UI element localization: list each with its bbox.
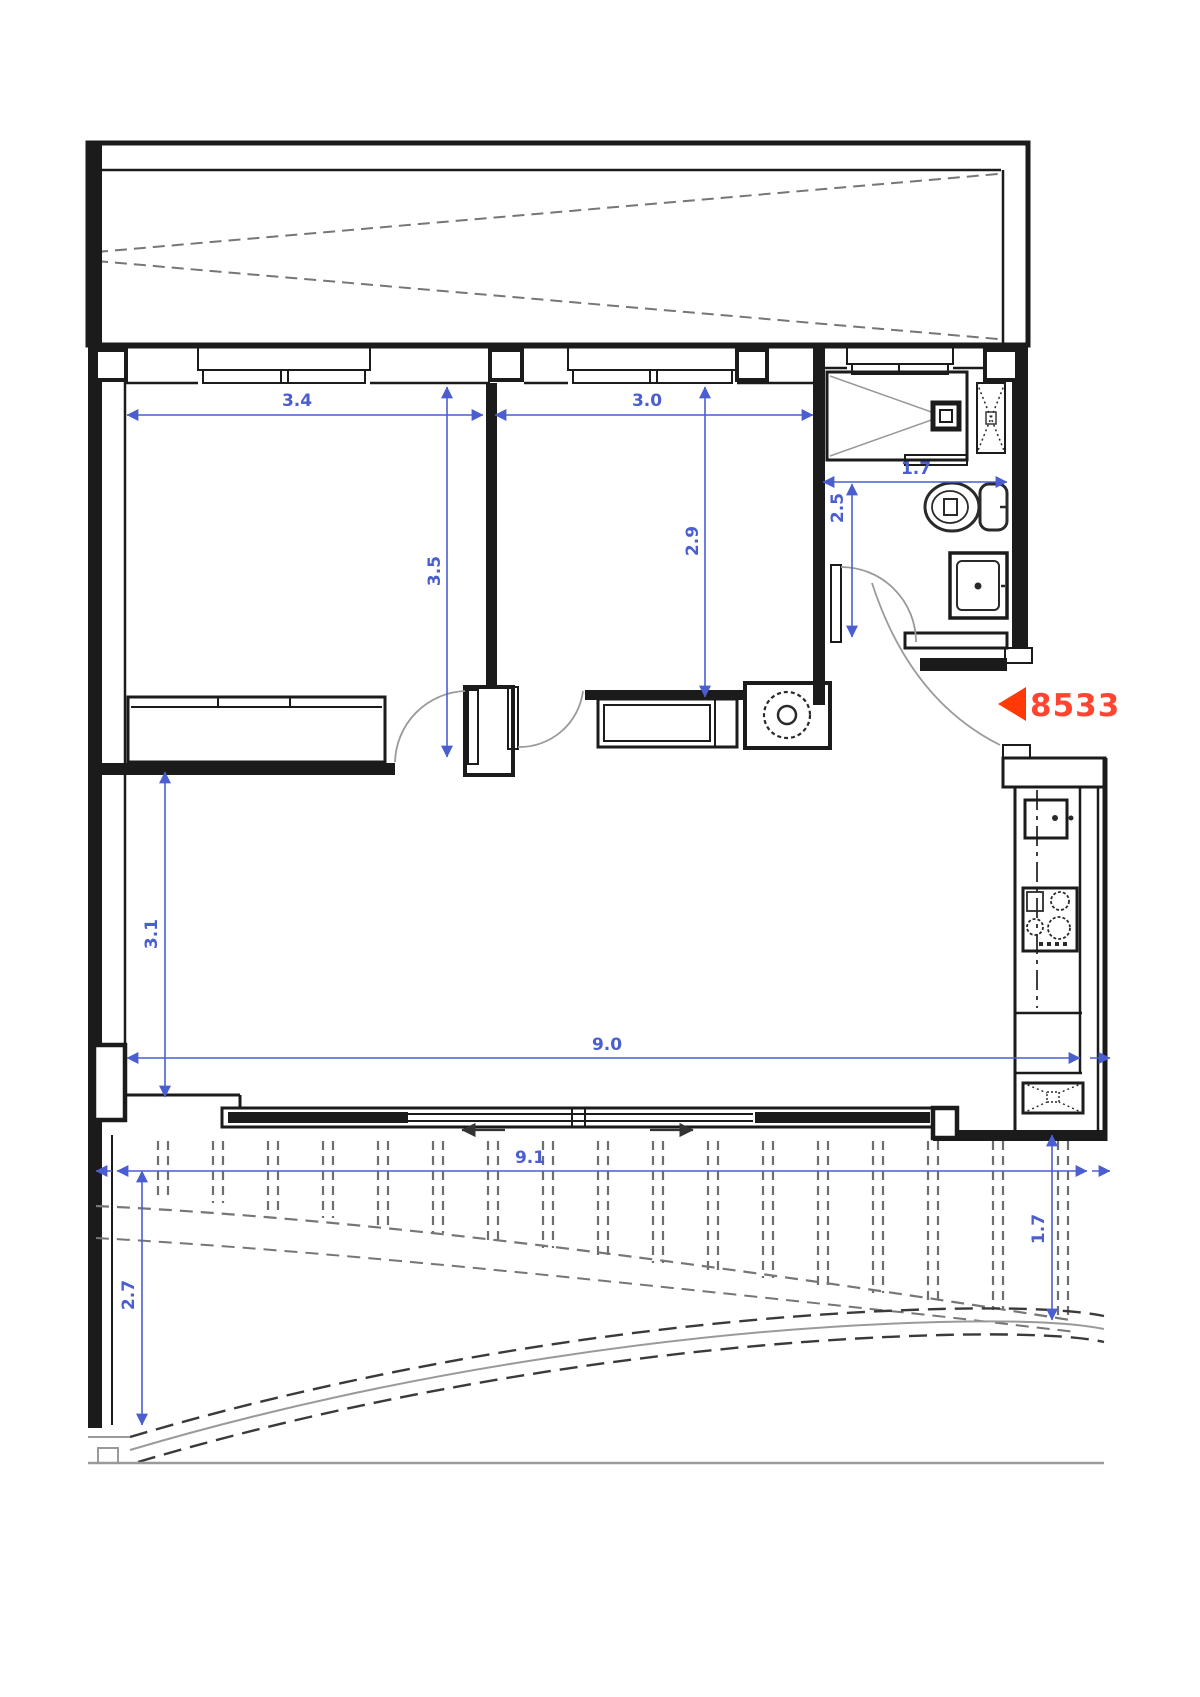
door-jamb-column bbox=[933, 1108, 957, 1138]
wall-column bbox=[490, 350, 522, 380]
road-center bbox=[130, 1321, 1104, 1450]
sink bbox=[950, 553, 1007, 618]
door-bathroom bbox=[831, 565, 916, 642]
wardrobe-bedroom1 bbox=[128, 697, 385, 762]
window-bedroom1 bbox=[198, 347, 370, 383]
bedroom1-south-wall bbox=[102, 763, 395, 775]
wall-column bbox=[985, 350, 1017, 380]
dim-label-living-depth: 3.1 bbox=[142, 919, 162, 949]
road-edge-2 bbox=[138, 1334, 1104, 1462]
dim-label-terrace-depth-left: 2.7 bbox=[119, 1280, 139, 1310]
bathroom bbox=[827, 372, 1007, 671]
window-bathroom bbox=[847, 347, 953, 374]
exterior-walls bbox=[88, 143, 1028, 1428]
wall-column bbox=[737, 350, 767, 380]
roof-slope-line-lower bbox=[96, 261, 998, 339]
unit-marker-label: 8533 bbox=[1030, 688, 1120, 724]
hall-closet bbox=[598, 699, 737, 747]
shower bbox=[827, 372, 967, 465]
door-jamb-column bbox=[465, 687, 513, 775]
unit-marker-arrow-icon bbox=[998, 687, 1026, 721]
shower-drain bbox=[933, 403, 959, 429]
dim-label-bedroom2-width: 3.0 bbox=[632, 391, 662, 411]
dim-label-bedroom2-depth: 2.9 bbox=[683, 526, 703, 556]
left-pillar bbox=[94, 1045, 125, 1120]
floor-vent bbox=[1023, 1083, 1083, 1113]
vent-duct bbox=[977, 383, 1005, 453]
bedroom-1 bbox=[128, 690, 478, 764]
dimensions: 3.4 3.0 3.5 2.9 1.7 2.5 3.1 9.0 9.1 2.7 … bbox=[96, 387, 1110, 1425]
floor-plan-drawing: 3.4 3.0 3.5 2.9 1.7 2.5 3.1 9.0 9.1 2.7 … bbox=[0, 0, 1200, 1697]
bedroom2-east-wall bbox=[813, 347, 825, 705]
dim-label-living-width: 9.0 bbox=[592, 1035, 622, 1055]
road-edge-1 bbox=[130, 1308, 1104, 1437]
floor-plan-canvas: 3.4 3.0 3.5 2.9 1.7 2.5 3.1 9.0 9.1 2.7 … bbox=[0, 0, 1200, 1697]
entry-threshold bbox=[1005, 648, 1032, 663]
bathroom-walls bbox=[905, 633, 1007, 671]
cooktop bbox=[1023, 888, 1077, 951]
dim-label-bedroom1-width: 3.4 bbox=[282, 391, 312, 411]
kitchen bbox=[933, 745, 1105, 1141]
toilet bbox=[925, 483, 1007, 531]
dim-label-terrace-width: 9.1 bbox=[515, 1148, 545, 1168]
railing-posts bbox=[158, 1141, 1068, 1319]
terrace bbox=[96, 1141, 1076, 1332]
roof-slope-line-upper bbox=[96, 174, 998, 252]
dim-label-bath-width: 1.7 bbox=[901, 459, 931, 479]
interior-walls bbox=[102, 347, 825, 775]
window-bedroom2 bbox=[568, 347, 737, 383]
kitchen-sink bbox=[1025, 800, 1074, 838]
roof-overhang bbox=[88, 143, 1028, 345]
unit-marker: 8533 bbox=[998, 687, 1120, 724]
wall-column bbox=[96, 350, 126, 380]
dim-label-bedroom1-depth: 3.5 bbox=[425, 556, 445, 586]
door-bedroom2 bbox=[508, 687, 583, 749]
living-room bbox=[125, 1095, 957, 1138]
site-lines bbox=[88, 1308, 1104, 1463]
dim-label-bath-depth: 2.5 bbox=[828, 493, 848, 523]
sliding-door bbox=[222, 1108, 935, 1130]
dim-label-terrace-depth-right: 1.7 bbox=[1029, 1214, 1049, 1244]
terrace-edge-upper bbox=[96, 1206, 1070, 1320]
